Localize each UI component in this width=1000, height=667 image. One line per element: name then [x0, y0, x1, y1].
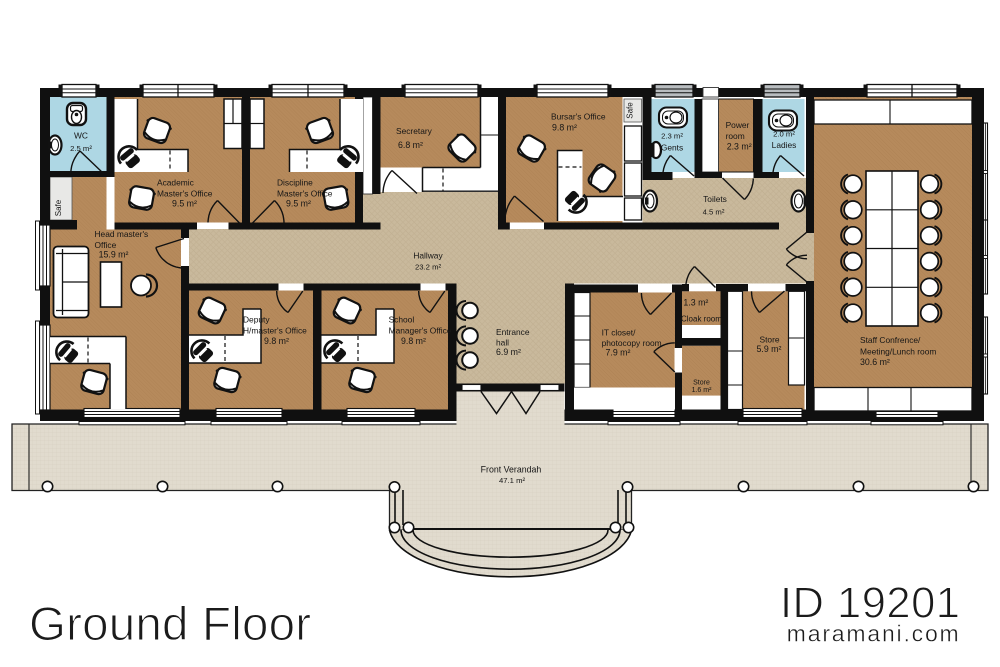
svg-text:7.9 m²: 7.9 m²: [606, 347, 631, 357]
svg-text:Head master's: Head master's: [95, 229, 149, 239]
svg-text:9.5 m²: 9.5 m²: [172, 199, 197, 209]
svg-text:Safe: Safe: [54, 199, 63, 216]
svg-text:WC: WC: [74, 131, 88, 141]
svg-text:Manager's Office: Manager's Office: [389, 326, 452, 336]
svg-text:2.0 m²: 2.0 m²: [773, 130, 795, 139]
svg-text:Toilets: Toilets: [703, 194, 727, 204]
svg-text:Discipline: Discipline: [277, 178, 313, 188]
svg-text:2.5 m²: 2.5 m²: [70, 144, 92, 153]
svg-text:9.8 m²: 9.8 m²: [264, 336, 289, 346]
svg-text:1.3 m²: 1.3 m²: [683, 298, 708, 308]
svg-text:9.8 m²: 9.8 m²: [552, 123, 577, 133]
svg-text:Master's Office: Master's Office: [277, 189, 333, 199]
svg-text:H/master's Office: H/master's Office: [243, 326, 307, 336]
svg-text:Bursar's Office: Bursar's Office: [551, 112, 606, 122]
svg-text:Office: Office: [95, 240, 117, 250]
svg-text:Cloak room: Cloak room: [681, 315, 722, 324]
svg-text:9.8 m²: 9.8 m²: [401, 336, 426, 346]
svg-text:maramani.com: maramani.com: [787, 621, 961, 647]
svg-text:Ladies: Ladies: [772, 140, 797, 150]
svg-text:6.8 m²: 6.8 m²: [398, 140, 423, 150]
svg-text:Ground Floor: Ground Floor: [29, 598, 311, 651]
svg-text:5.9 m²: 5.9 m²: [757, 344, 782, 354]
svg-text:47.1 m²: 47.1 m²: [499, 476, 526, 485]
svg-text:Power: Power: [726, 120, 750, 130]
svg-text:Master's Office: Master's Office: [157, 189, 213, 199]
svg-text:Hallway: Hallway: [413, 250, 443, 260]
svg-text:2.3 m²: 2.3 m²: [727, 142, 752, 152]
svg-text:23.2 m²: 23.2 m²: [415, 263, 442, 272]
svg-text:Deputy: Deputy: [243, 315, 270, 325]
svg-text:Store: Store: [693, 380, 710, 387]
svg-text:2.3 m²: 2.3 m²: [661, 132, 683, 141]
svg-text:IT closet/: IT closet/: [602, 327, 636, 337]
svg-text:Secretary: Secretary: [396, 126, 433, 136]
svg-text:School: School: [389, 315, 415, 325]
svg-text:room: room: [726, 131, 745, 141]
svg-text:photocopy room: photocopy room: [602, 338, 662, 348]
svg-text:9.5 m²: 9.5 m²: [286, 199, 311, 209]
svg-text:Meeting/Lunch room: Meeting/Lunch room: [860, 347, 936, 357]
svg-text:Academic: Academic: [157, 178, 194, 188]
svg-text:4.5 m²: 4.5 m²: [703, 208, 725, 217]
svg-text:Front Verandah: Front Verandah: [481, 465, 542, 475]
svg-text:30.6 m²: 30.6 m²: [860, 357, 890, 367]
svg-text:1.6 m²: 1.6 m²: [692, 387, 713, 394]
svg-text:Safe: Safe: [626, 102, 635, 119]
svg-text:Gents: Gents: [661, 143, 683, 153]
svg-text:Entrance: Entrance: [496, 327, 530, 337]
svg-text:6.9 m²: 6.9 m²: [496, 347, 521, 357]
svg-text:15.9 m²: 15.9 m²: [99, 250, 129, 260]
svg-text:Staff Confrence/: Staff Confrence/: [860, 335, 921, 345]
